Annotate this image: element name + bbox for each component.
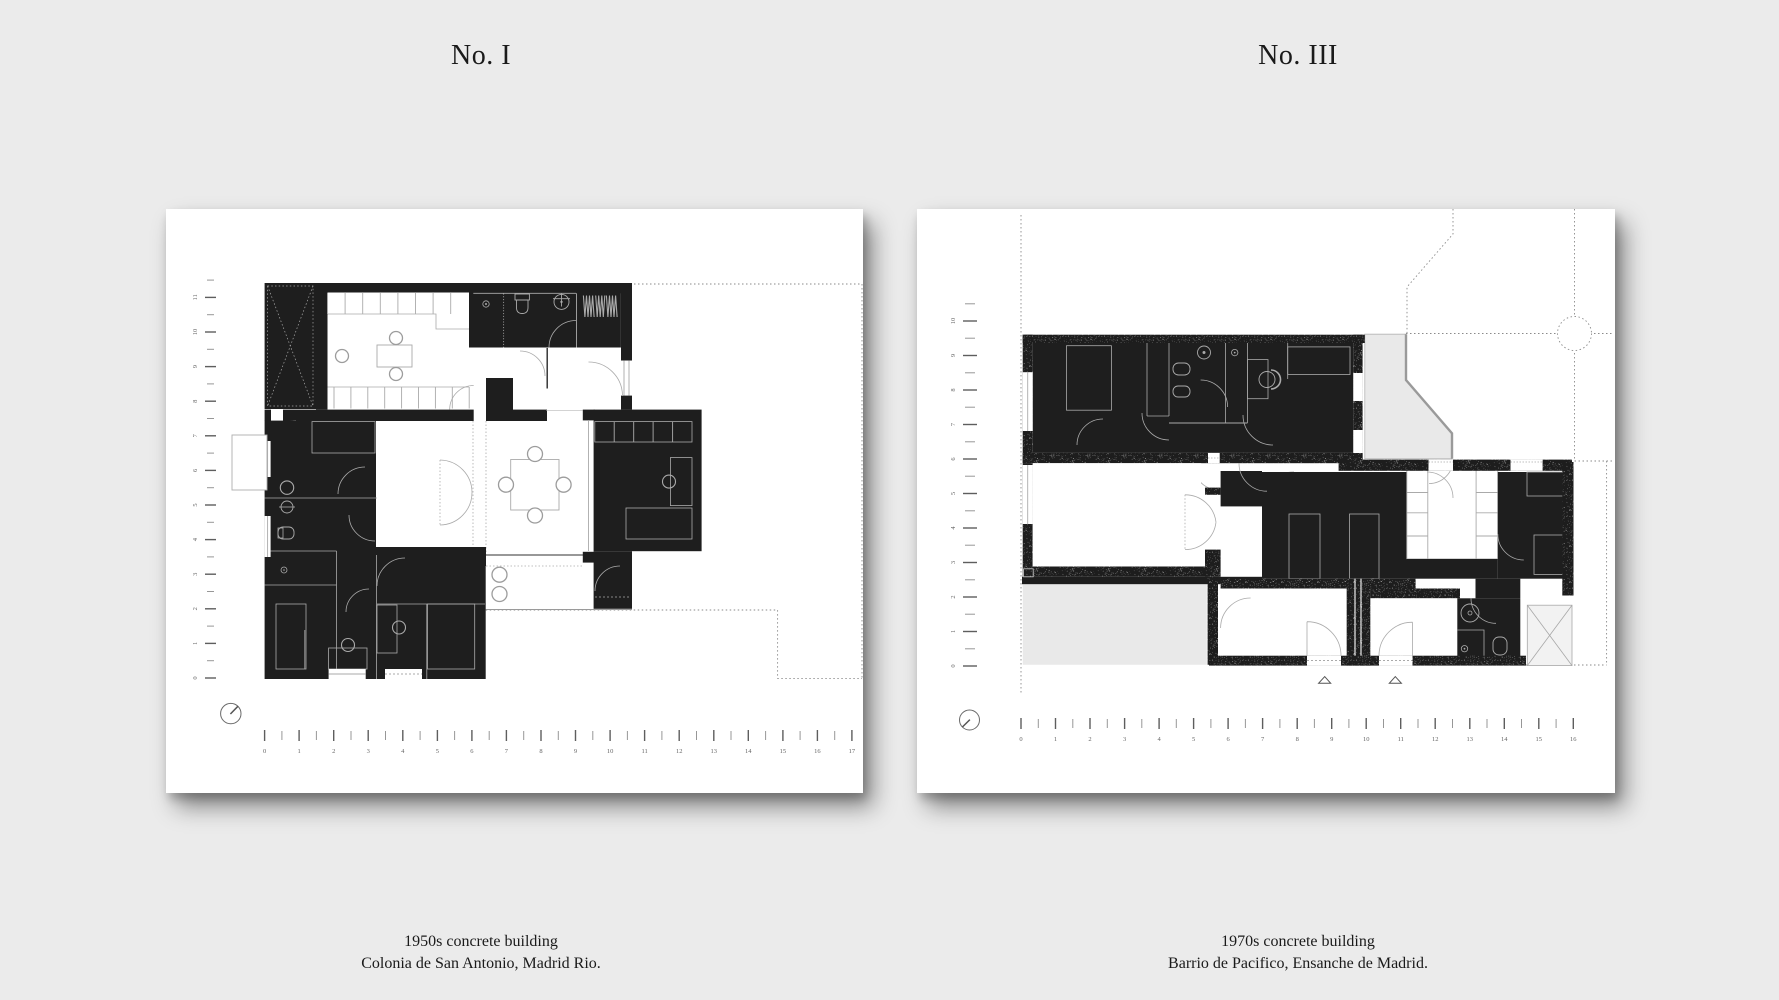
svg-text:5: 5	[192, 503, 199, 506]
svg-text:17: 17	[849, 748, 856, 755]
svg-text:6: 6	[192, 468, 199, 472]
svg-text:2: 2	[950, 595, 957, 598]
svg-text:2: 2	[332, 748, 335, 755]
svg-text:5: 5	[1192, 736, 1195, 743]
svg-text:10: 10	[192, 329, 199, 336]
svg-text:11: 11	[192, 294, 199, 300]
svg-text:1: 1	[297, 748, 300, 755]
svg-text:4: 4	[192, 537, 199, 541]
svg-text:3: 3	[1123, 736, 1126, 743]
svg-text:9: 9	[1330, 736, 1333, 743]
svg-text:4: 4	[950, 526, 957, 530]
svg-text:6: 6	[470, 748, 474, 755]
svg-text:15: 15	[780, 748, 787, 755]
svg-text:4: 4	[1157, 736, 1161, 743]
svg-text:5: 5	[950, 492, 957, 495]
svg-text:4: 4	[401, 748, 405, 755]
svg-text:8: 8	[950, 388, 957, 391]
svg-text:10: 10	[607, 748, 614, 755]
svg-text:16: 16	[1570, 736, 1577, 743]
svg-text:11: 11	[641, 748, 647, 755]
svg-text:7: 7	[1261, 736, 1265, 743]
svg-text:9: 9	[192, 365, 199, 368]
svg-text:1: 1	[192, 642, 199, 645]
svg-text:11: 11	[1398, 736, 1404, 743]
svg-text:9: 9	[574, 748, 577, 755]
svg-text:8: 8	[539, 748, 542, 755]
svg-text:2: 2	[1088, 736, 1091, 743]
svg-text:14: 14	[1501, 736, 1508, 743]
svg-text:6: 6	[950, 457, 957, 461]
svg-text:3: 3	[367, 748, 370, 755]
svg-text:12: 12	[676, 748, 683, 755]
svg-text:0: 0	[192, 676, 199, 679]
svg-text:13: 13	[711, 748, 718, 755]
svg-text:6: 6	[1226, 736, 1230, 743]
svg-text:0: 0	[1019, 736, 1022, 743]
svg-text:2: 2	[192, 607, 199, 610]
svg-text:0: 0	[263, 748, 266, 755]
svg-text:10: 10	[1363, 736, 1370, 743]
svg-text:3: 3	[192, 573, 199, 576]
svg-text:9: 9	[950, 354, 957, 357]
svg-text:7: 7	[505, 748, 509, 755]
svg-text:12: 12	[1432, 736, 1439, 743]
svg-text:15: 15	[1536, 736, 1543, 743]
svg-text:3: 3	[950, 561, 957, 564]
svg-text:7: 7	[950, 422, 957, 426]
svg-text:8: 8	[192, 400, 199, 403]
svg-text:7: 7	[192, 433, 199, 437]
svg-text:10: 10	[950, 318, 957, 325]
svg-text:0: 0	[950, 664, 957, 667]
svg-text:8: 8	[1296, 736, 1299, 743]
svg-text:1: 1	[950, 630, 957, 633]
svg-text:14: 14	[745, 748, 752, 755]
svg-text:5: 5	[436, 748, 439, 755]
svg-text:1: 1	[1054, 736, 1057, 743]
svg-text:16: 16	[814, 748, 821, 755]
svg-text:13: 13	[1467, 736, 1474, 743]
